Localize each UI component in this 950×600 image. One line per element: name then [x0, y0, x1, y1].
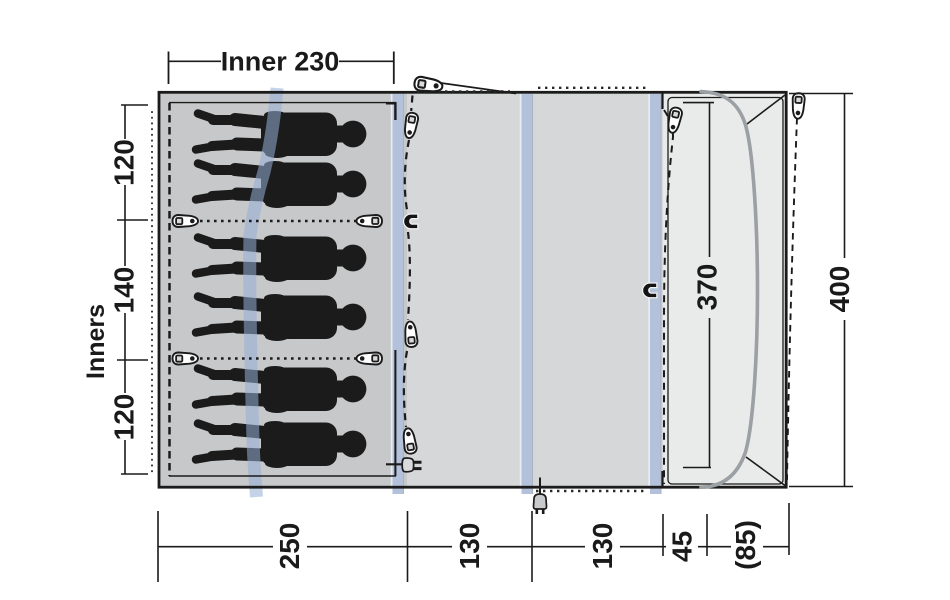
- svg-text:130: 130: [587, 523, 618, 570]
- svg-text:45: 45: [667, 531, 698, 562]
- svg-text:400: 400: [824, 266, 855, 313]
- svg-text:Inners: Inners: [82, 304, 110, 379]
- svg-text:120: 120: [109, 139, 140, 186]
- svg-text:(85): (85): [730, 520, 761, 570]
- svg-text:250: 250: [274, 523, 305, 570]
- svg-text:140: 140: [109, 267, 140, 314]
- svg-text:120: 120: [109, 394, 140, 441]
- svg-text:Inner 230: Inner 230: [221, 47, 340, 77]
- svg-text:130: 130: [454, 523, 485, 570]
- svg-text:370: 370: [692, 264, 723, 311]
